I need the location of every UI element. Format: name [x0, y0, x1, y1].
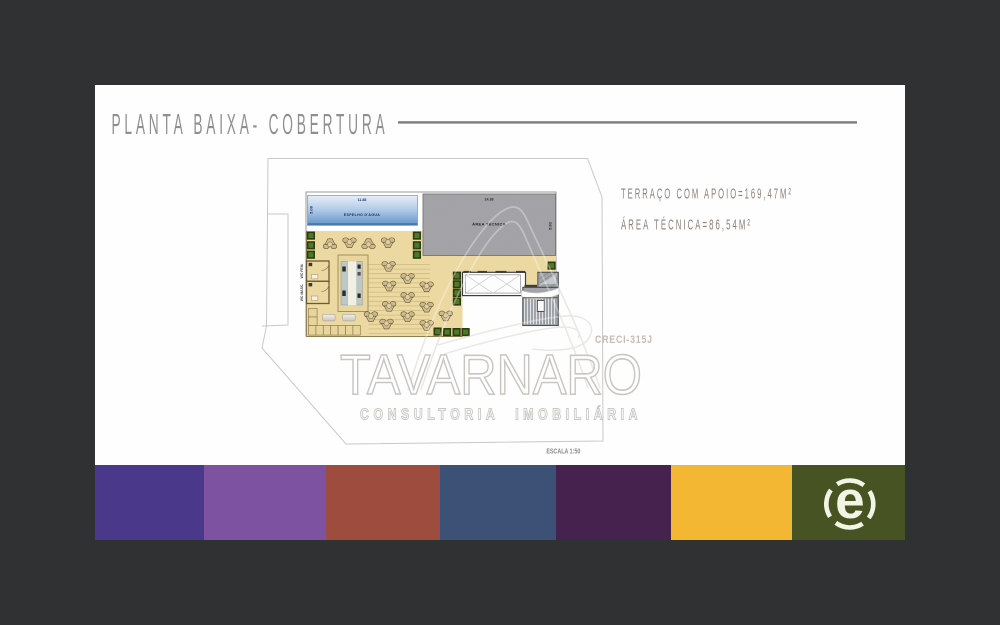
svg-text:5.08: 5.08	[308, 205, 313, 214]
svg-text:ESCALA 1:50: ESCALA 1:50	[546, 449, 580, 456]
svg-text:PLANTA BAIXA- COBERTURA: PLANTA BAIXA- COBERTURA	[112, 107, 389, 140]
svg-text:CRECI-315J: CRECI-315J	[595, 334, 653, 346]
svg-text:ÁREA TÉCNICA=86,54M²: ÁREA TÉCNICA=86,54M²	[621, 214, 752, 233]
svg-text:ESPELHO D'ÁGUA: ESPELHO D'ÁGUA	[344, 212, 381, 217]
svg-text:5.93: 5.93	[548, 221, 553, 230]
svg-text:WC FEM.: WC FEM.	[300, 264, 304, 279]
svg-text:TAVARNARO: TAVARNARO	[340, 343, 642, 407]
svg-text:TERRAÇO COM APOIO=169,47M²: TERRAÇO COM APOIO=169,47M²	[621, 185, 793, 203]
svg-text:WC MASC.: WC MASC.	[300, 284, 304, 302]
svg-text:CONSULTORIA IMOBILIÁRIA: CONSULTORIA IMOBILIÁRIA	[360, 405, 642, 424]
svg-text:14.38: 14.38	[485, 197, 494, 201]
svg-text:e: e	[835, 471, 864, 530]
svg-text:11.88: 11.88	[358, 198, 367, 202]
